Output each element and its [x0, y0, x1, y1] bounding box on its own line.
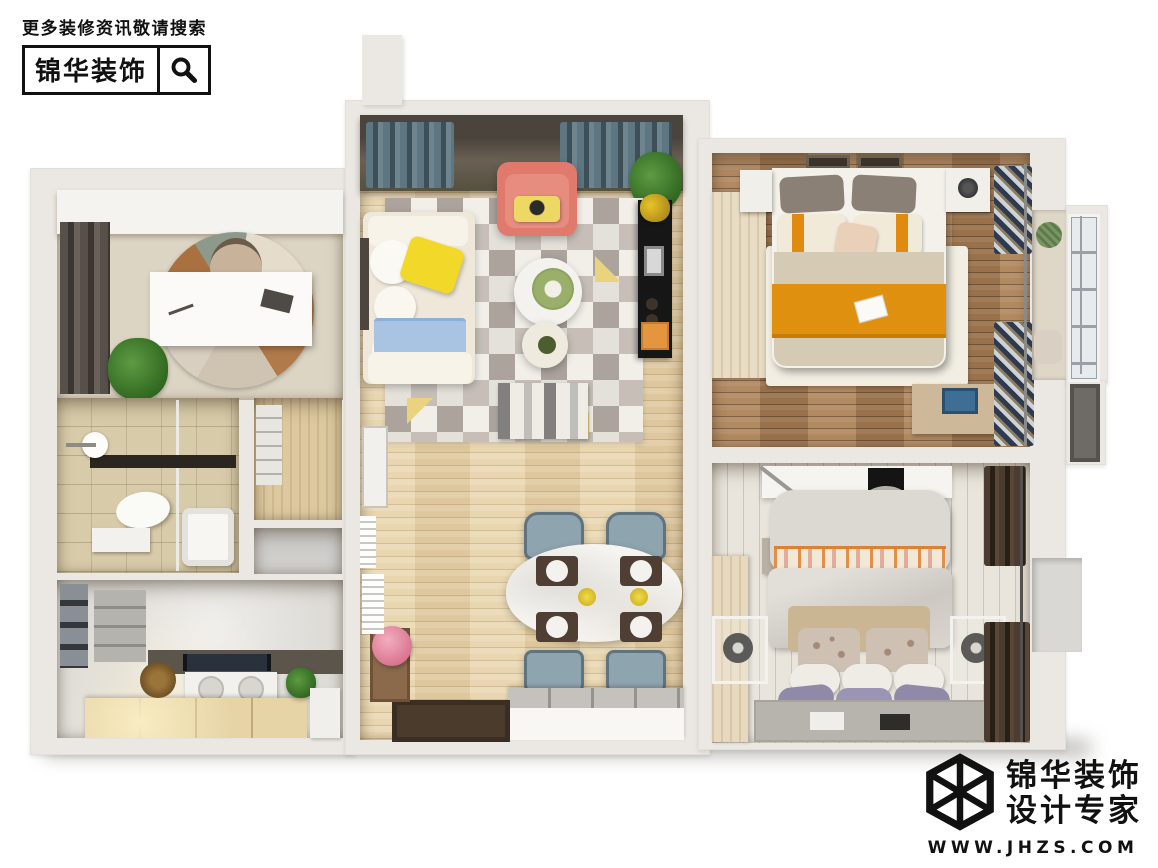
bedroom2-curtain-rod [1020, 466, 1023, 742]
master-gray-pillow-left [779, 174, 845, 213]
tv-sunflowers [640, 194, 670, 222]
dining-wall-vent [360, 516, 376, 568]
plate [630, 560, 652, 582]
kitchen-base-cabinets [85, 698, 307, 738]
living-curtain-left [366, 122, 454, 188]
kitchen-side-cabinet [310, 688, 340, 738]
kitchen-woven-tray [140, 662, 176, 698]
brand-header: 更多装修资讯敬请搜索 锦华装饰 [22, 14, 211, 95]
bay-window-mullion [1080, 216, 1082, 374]
study-plant [108, 338, 168, 400]
bedroom2-side-niche [1032, 558, 1082, 652]
brand-name-header: 锦华装饰 [25, 48, 157, 92]
master-art-frame-1 [806, 155, 850, 169]
master-laptop [942, 388, 978, 414]
master-curtain-bottom [994, 322, 1034, 446]
brand-name-footer: 锦华装饰 [1006, 759, 1142, 794]
wireframe-cube-icon [924, 753, 996, 835]
placemat-4 [620, 612, 662, 642]
living-wall-frames [360, 238, 369, 330]
living-wall-niche [362, 426, 388, 508]
master-wardrobe [712, 192, 766, 378]
tv-orange-drawer [641, 322, 669, 350]
bathroom-vanity [92, 528, 150, 552]
table-flowers-2 [630, 588, 648, 606]
master-art-frame-2 [858, 155, 902, 169]
entry-door-mat [392, 700, 510, 742]
side-door-recess [1070, 384, 1100, 462]
armchair-face-pillow [514, 196, 560, 222]
bedroom2-nightstand-left [712, 616, 768, 684]
bedroom2-gray-rug [754, 700, 988, 742]
brand-website: WWW.JHZS.COM [924, 838, 1142, 858]
placemat-2 [620, 556, 662, 586]
bathroom-glass-partition [176, 400, 179, 571]
brand-search-box: 锦华装饰 [22, 45, 211, 95]
plate [630, 616, 652, 638]
sofa-armrest-bottom [368, 352, 472, 384]
master-gray-pillow-right [851, 174, 917, 213]
wall-chimney [362, 35, 402, 105]
bathroom-bathtub [182, 508, 234, 566]
bay-window-frame [1068, 214, 1100, 382]
patterned-bench [498, 383, 588, 439]
dining-radiator [362, 574, 384, 634]
rug-book-light [810, 712, 844, 730]
brand-footer-row: 锦华装饰 设计专家 [924, 753, 1142, 835]
hall-gray-niche [254, 528, 342, 574]
bathroom-counter [90, 455, 236, 468]
plate [546, 616, 568, 638]
kitchen-window [60, 584, 88, 668]
brand-tagline: 更多装修资讯敬请搜索 [22, 14, 211, 39]
master-curtain-rod [1024, 164, 1027, 446]
bathroom-lamp-arm [66, 443, 96, 447]
coffee-table-small-plant [538, 336, 556, 354]
placemat-1 [536, 556, 578, 586]
floorplan-render-canvas: 更多装修资讯敬请搜索 锦华装饰 [0, 0, 1158, 868]
tv-photo-frames [644, 246, 664, 276]
coffee-table-plant [532, 268, 574, 310]
master-table-lamp [958, 178, 978, 198]
magnifier-icon [160, 48, 208, 92]
master-nightstand-left [740, 170, 772, 212]
brand-subtitle: 设计专家 [1006, 794, 1142, 829]
kitchen-pantry-shelves [94, 590, 146, 662]
bedroom2-curtain-bottom [984, 622, 1030, 742]
placemat-3 [536, 612, 578, 642]
bay-leaf-cushion [1036, 222, 1062, 248]
study-curtains [60, 222, 110, 394]
plate [546, 560, 568, 582]
rug-book-dark [880, 714, 910, 730]
bay-bench-pillow [1034, 330, 1062, 364]
tv-speaker-dots [646, 298, 658, 310]
brand-footer: 锦华装饰 设计专家 WWW.JHZS.COM [924, 753, 1142, 858]
hall-closet-cabinet [256, 405, 282, 485]
kitchen-cooktop [183, 654, 271, 671]
sideboard-tray-top [508, 688, 684, 708]
fan-icon [723, 633, 753, 663]
table-flowers-1 [578, 588, 596, 606]
